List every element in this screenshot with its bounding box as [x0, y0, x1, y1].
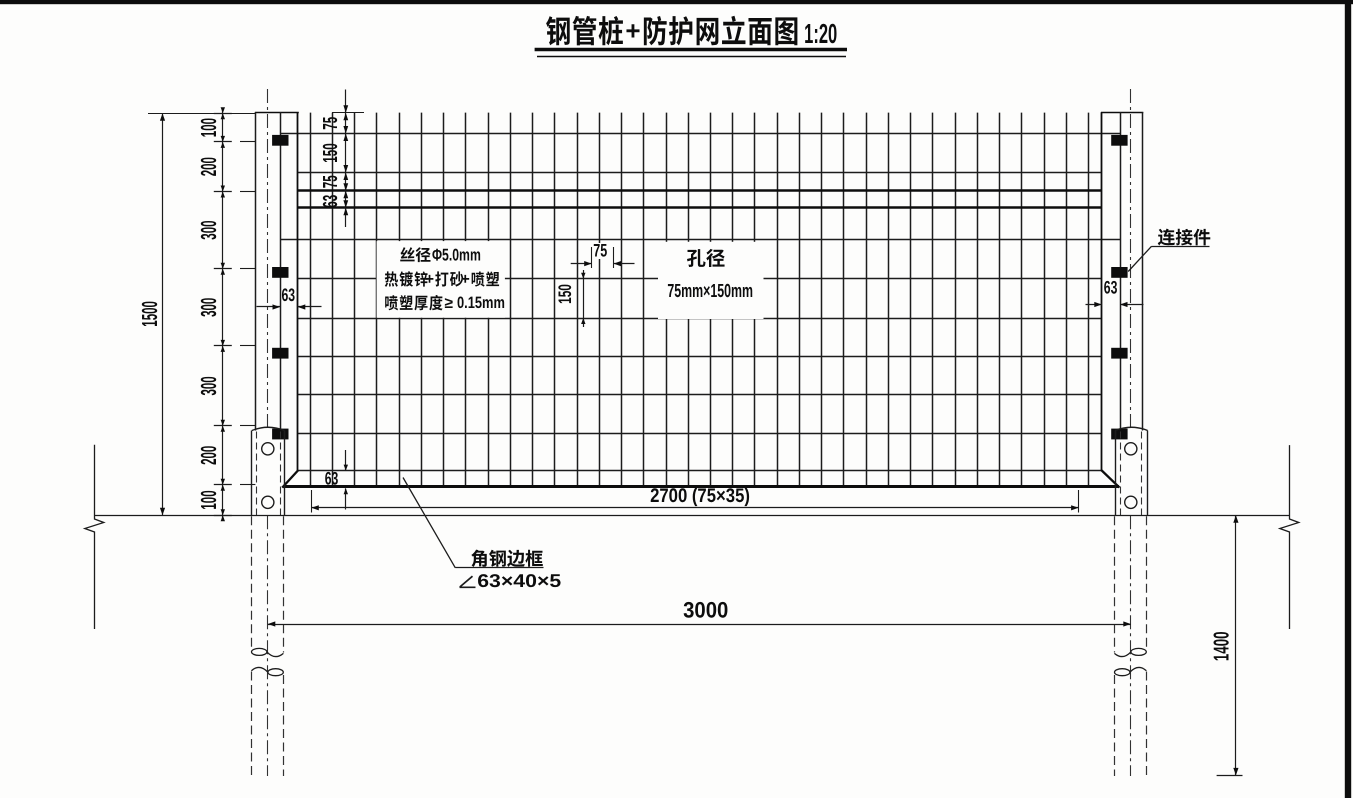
- svg-text:75: 75: [320, 175, 342, 188]
- svg-text:75: 75: [320, 117, 342, 130]
- svg-text:200: 200: [196, 446, 221, 465]
- svg-text:1:20: 1:20: [804, 18, 837, 49]
- svg-text:63: 63: [325, 469, 339, 489]
- svg-text:100: 100: [196, 490, 221, 509]
- svg-text:63: 63: [282, 285, 296, 305]
- svg-text:+: +: [461, 271, 470, 288]
- svg-text:75: 75: [593, 241, 607, 261]
- svg-text:+: +: [625, 16, 640, 46]
- svg-text:300: 300: [196, 220, 221, 239]
- svg-text:1500: 1500: [137, 301, 162, 327]
- svg-text:150: 150: [320, 143, 342, 163]
- svg-text:1400: 1400: [1210, 631, 1234, 661]
- svg-text:63: 63: [320, 195, 342, 208]
- svg-text:200: 200: [196, 157, 221, 176]
- svg-text:75mm×150mm: 75mm×150mm: [667, 281, 753, 302]
- svg-text:63×40×5: 63×40×5: [477, 570, 561, 591]
- svg-text:3000: 3000: [683, 598, 728, 623]
- svg-text:300: 300: [196, 298, 221, 317]
- svg-text:≥: ≥: [445, 295, 454, 312]
- svg-text:300: 300: [196, 376, 221, 395]
- svg-text:Φ5.0mm: Φ5.0mm: [432, 246, 481, 265]
- svg-text:150: 150: [555, 284, 575, 304]
- svg-text:63: 63: [1104, 277, 1118, 297]
- svg-text:100: 100: [196, 118, 221, 137]
- svg-text:+: +: [425, 271, 434, 288]
- svg-text:0.15mm: 0.15mm: [457, 294, 505, 312]
- svg-text:2700 (75×35): 2700 (75×35): [650, 485, 750, 507]
